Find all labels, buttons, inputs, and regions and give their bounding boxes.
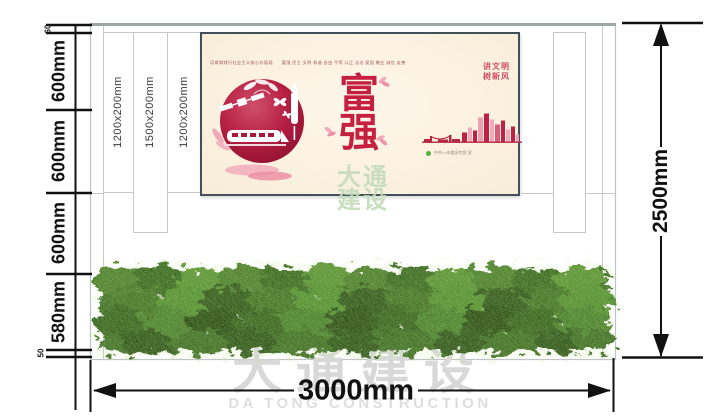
petal-decoration (376, 136, 388, 146)
poster-tagline: 讲文明 树新风 (483, 62, 510, 82)
slat-size-label-2: 1500x200mm (144, 76, 156, 148)
dim-label-600-3: 600mm (49, 202, 70, 264)
dim-label-50: 50 (37, 349, 46, 358)
credit-logo-dot (426, 151, 431, 156)
tagline-line-1: 讲文明 (483, 62, 510, 72)
papercut-circle-art (210, 74, 314, 184)
slat-size-label-3: 1200x200mm (178, 76, 190, 148)
petal-decoration (378, 78, 390, 88)
watermark-center-line1: 大通 (337, 166, 389, 189)
dim-label-2500: 2500mm (649, 149, 673, 233)
slat-size-label-1: 1200x200mm (112, 76, 124, 148)
petal-decoration (324, 128, 336, 138)
watermark-center: 大通 建设 (337, 166, 389, 212)
poster-top-slogan: 培育和践行社会主义核心价值观 富强 民主 文明 和谐 自由 平等 公正 法治 爱… (210, 60, 420, 66)
hedge-plant-strip (88, 254, 620, 370)
tagline-line-2: 树新风 (483, 72, 510, 82)
poster-main-characters: 富强 (338, 74, 380, 152)
dim-label-600-2: 600mm (49, 120, 70, 182)
poster-credit: 中共××市委宣传部 宣 (426, 150, 472, 156)
dim-label-580: 580mm (49, 281, 70, 343)
watermark-center-line2: 建设 (337, 189, 389, 212)
dim-label-3000: 3000mm (298, 375, 414, 408)
dim-label-60: 60 (44, 25, 53, 34)
credit-text: 中共××市委宣传部 宣 (434, 150, 472, 156)
blueprint-canvas: 1200x200mm 1500x200mm 1200x200mm 培育和践行社会… (0, 0, 720, 420)
dim-label-600-1: 600mm (49, 40, 70, 102)
city-skyline-graphic (422, 108, 522, 148)
